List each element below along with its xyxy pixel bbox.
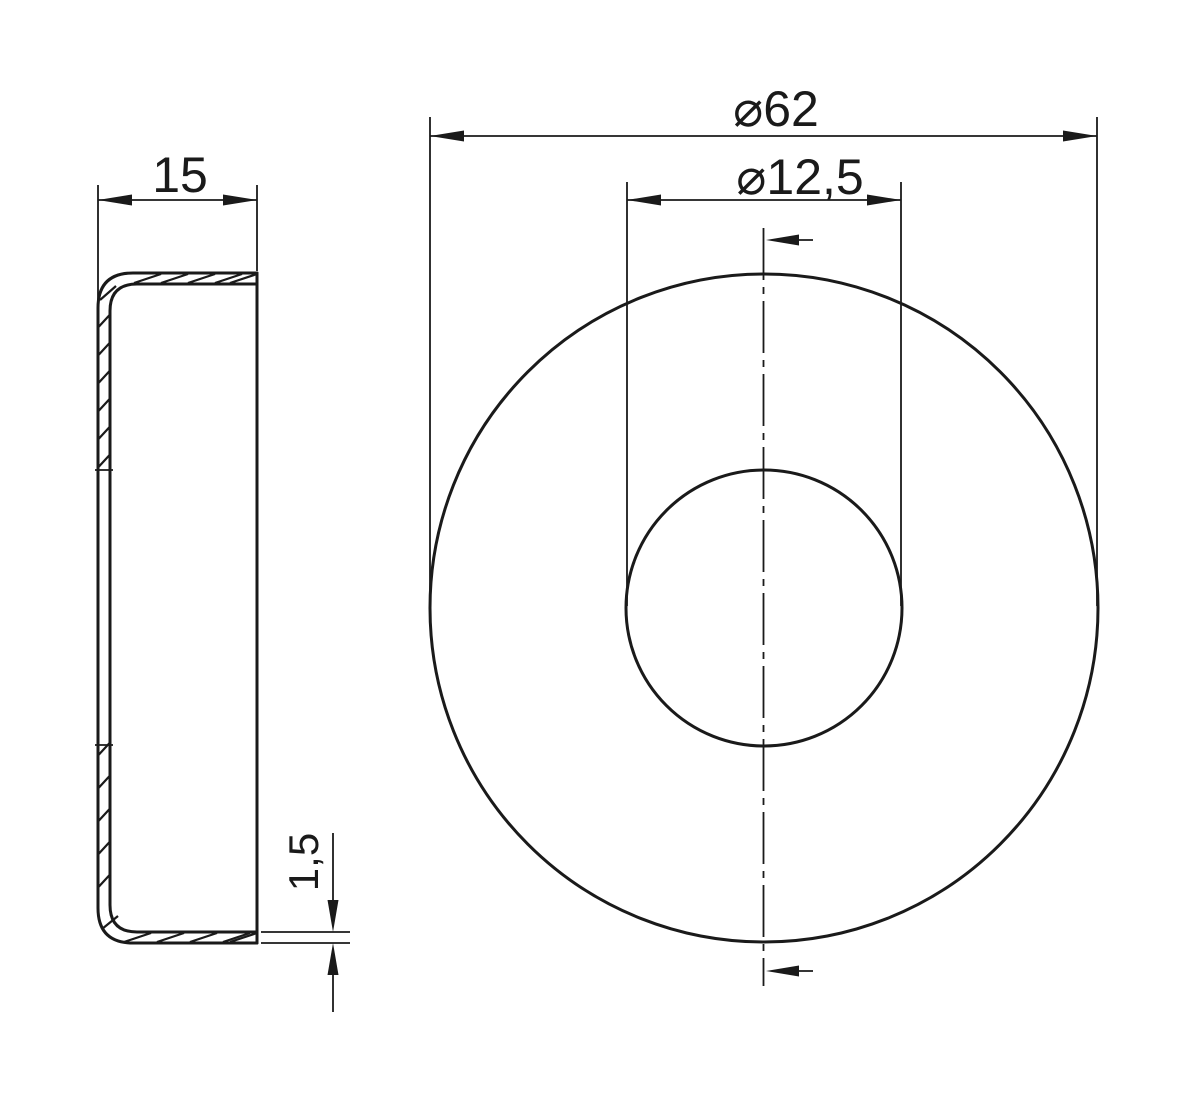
hatch-tick [124,933,151,942]
hatch-tick [157,933,184,942]
hatch-tick [188,274,215,283]
dim-wall-thickness: 1,5 [261,833,350,1012]
dim-wall-thickness-label: 1,5 [280,833,327,891]
section-plane-arrow-top [766,235,813,246]
technical-drawing-page: 15 ⌀62 ⌀12,5 1,5 [0,0,1200,1100]
arrow-head-icon [766,966,799,977]
dim-hole-diameter-label: ⌀12,5 [736,149,863,205]
arrow-head-down-icon [328,900,339,932]
arrow-head-icon [766,235,799,246]
hatch-tick [230,274,257,283]
arrow-head-left-icon [98,195,132,206]
hatch-tick [134,274,161,283]
front-view [430,228,1098,986]
arrow-head-right-icon [1063,131,1097,142]
hatch-tick [190,933,217,942]
section-plane-arrow-bottom [766,966,813,977]
cap-inner-profile [110,284,257,932]
technical-drawing-canvas: 15 ⌀62 ⌀12,5 1,5 [0,0,1200,1100]
arrow-head-left-icon [430,131,464,142]
arrow-head-right-icon [867,195,901,206]
arrow-head-right-icon [223,195,257,206]
dim-outer-diameter-label: ⌀62 [733,81,819,137]
arrow-head-left-icon [627,195,661,206]
dim-width-label: 15 [152,147,208,203]
cap-outer-profile [98,273,257,943]
hatch-tick [161,274,188,283]
side-section-view [95,273,257,943]
section-hatching [99,274,258,942]
hatch-tick [215,274,242,283]
arrow-head-up-icon [328,943,339,975]
